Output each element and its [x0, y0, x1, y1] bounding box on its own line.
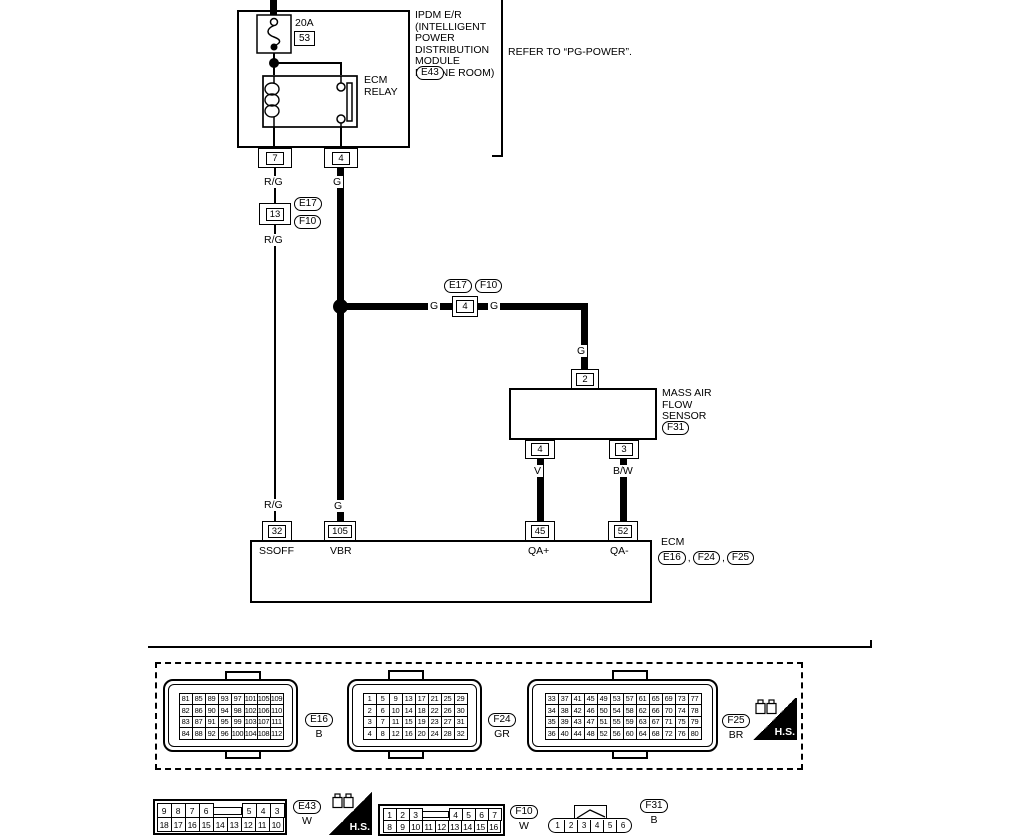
- wire-color-label-rg: R/G: [262, 499, 285, 511]
- wire-g-run: [337, 168, 344, 523]
- pin-cell: 1: [551, 820, 564, 832]
- connector-color-code: B: [650, 814, 657, 826]
- pin-cell: 84: [179, 727, 193, 740]
- pin-cell: 13: [448, 820, 462, 833]
- connector-icon: [332, 793, 354, 809]
- hs-label: H.S.: [775, 726, 795, 738]
- pin-cell: 112: [270, 727, 284, 740]
- pin-grid-f25: 3337414549535761656973773438424650545862…: [545, 693, 701, 739]
- pin-cell: 5: [242, 803, 257, 818]
- pin-cell: 9: [157, 803, 172, 818]
- pin-grid-f24: 1591317212529261014182226303711151923273…: [363, 693, 467, 739]
- wire-color-label-bw: B/W: [611, 465, 635, 477]
- wire-color-label-g: G: [575, 345, 587, 357]
- fuse-number: 53: [294, 31, 315, 46]
- connector-label-f25: F25 BR: [717, 714, 755, 741]
- connector-id-tag: E43: [293, 800, 321, 814]
- pin-cell: 48: [584, 727, 598, 740]
- ecm-pin-32: 32: [262, 521, 292, 541]
- pin-row: 181716151413121110: [157, 817, 284, 832]
- pin-cell: 68: [649, 727, 663, 740]
- ecm-pin-45: 45: [525, 521, 555, 541]
- pin-cell: 11: [255, 817, 270, 832]
- pin-cell: 108: [257, 727, 271, 740]
- wiring-diagram: 20A 53 ECM RELAY IPDM E/R (INTELLIGENT P…: [0, 0, 1020, 840]
- separator: ,: [722, 552, 725, 564]
- maf-pin-3: 3: [609, 440, 639, 459]
- fuse-rating: 20A: [295, 17, 314, 29]
- ipdm-title-line: IPDM E/R: [415, 10, 494, 22]
- pin-cell: 88: [192, 727, 206, 740]
- pin-cell: 92: [205, 727, 219, 740]
- pin-cell: 4: [363, 727, 377, 740]
- refer-note: REFER TO “PG-POWER”.: [508, 46, 632, 58]
- pin-number: 52: [614, 525, 633, 538]
- pin-number: 32: [268, 525, 287, 538]
- wire-color-label-g: G: [488, 300, 500, 312]
- connector-color-code: GR: [494, 728, 510, 740]
- connector-view-e16: 8185899397101105109828690949810210611083…: [163, 679, 298, 752]
- connector-id-tag-f24: F24: [693, 551, 720, 565]
- pin-cell: 24: [428, 727, 442, 740]
- wire-color-label-rg: R/G: [262, 176, 285, 188]
- pin-number: 13: [266, 208, 285, 221]
- maf-pin-2: 2: [571, 369, 599, 389]
- connector-id-tag: E16: [305, 713, 333, 727]
- pin-cell: 6: [199, 803, 214, 818]
- pin-cell: 3: [577, 820, 590, 832]
- wire-color-label-g: G: [332, 500, 344, 512]
- connector-color-code: W: [302, 815, 312, 827]
- pin-cell: 18: [157, 817, 172, 832]
- pin-cell: 8: [171, 803, 186, 818]
- hs-mark: H.S.: [329, 792, 372, 835]
- pin-cell: 80: [688, 727, 702, 740]
- maf-title-line: MASS AIR: [662, 388, 712, 400]
- ecm-pin-52: 52: [608, 521, 638, 541]
- connector-id-tag: F10: [510, 805, 537, 819]
- pin-row: 123456: [551, 820, 629, 832]
- pin-number: 4: [332, 152, 350, 165]
- connector-color-code: B: [315, 728, 322, 740]
- connector-id-tag-f10: F10: [475, 279, 502, 293]
- connector-label-e43: E43 W: [288, 800, 326, 827]
- connector-view-f31: 123456: [548, 818, 632, 833]
- ecm-box: [250, 540, 652, 603]
- ecm-pin-name-qa-plus: QA+: [528, 545, 549, 557]
- pin-grid-e16: 8185899397101105109828690949810210611083…: [179, 693, 283, 739]
- pin-cell: 12: [389, 727, 403, 740]
- pin-cell: 52: [597, 727, 611, 740]
- pin-number: 105: [328, 525, 352, 538]
- pin-cell: 11: [422, 820, 436, 833]
- ecm-pin-name-vbr: VBR: [330, 545, 352, 557]
- pin-number: 3: [615, 443, 633, 456]
- connector-icon: [755, 699, 777, 715]
- separator: ,: [688, 552, 691, 564]
- refer-bracket-vertical: [501, 0, 503, 157]
- pin-cell: 17: [171, 817, 186, 832]
- maf-sensor-box: [509, 388, 657, 440]
- connector-id-tag-f31: F31: [662, 421, 689, 435]
- pin-cell: 40: [558, 727, 572, 740]
- fuse-icon: [256, 14, 292, 54]
- pin-number: 4: [531, 443, 549, 456]
- pin-cell: 9: [396, 820, 410, 833]
- connector-label-e16: E16 B: [300, 713, 338, 740]
- connector-id-tag: F25: [722, 714, 749, 728]
- connector-id-tag-f25: F25: [727, 551, 754, 565]
- connector-id-tag: F24: [488, 713, 515, 727]
- pin-grid-f31: 123456: [551, 820, 629, 832]
- ecm-title: ECM: [661, 536, 684, 548]
- pin-grid-f10: 12345678910111213141516: [383, 808, 501, 832]
- connector-color-code: BR: [729, 729, 744, 741]
- pin-row: 8910111213141516: [383, 820, 501, 833]
- connector-id-tag-e17: E17: [294, 197, 322, 211]
- pin-number: 7: [266, 152, 284, 165]
- ipdm-pin-7: 7: [258, 148, 292, 168]
- pin-cell: 72: [662, 727, 676, 740]
- ecm-relay-label-line1: ECM: [364, 75, 398, 87]
- pin-cell: 14: [213, 817, 228, 832]
- connector-view-f25: 3337414549535761656973773438424650545862…: [527, 679, 718, 752]
- pin-row: 9876543: [157, 803, 284, 818]
- pin-cell: 16: [185, 817, 200, 832]
- ecm-pin-name-ssoff: SSOFF: [259, 545, 294, 557]
- wire-g-branch-vertical: [581, 303, 588, 370]
- pin-cell: 96: [218, 727, 232, 740]
- pin-cell: 8: [376, 727, 390, 740]
- pin-cell: 100: [231, 727, 245, 740]
- connector-inner-frame: 3337414549535761656973773438424650545862…: [532, 684, 713, 747]
- pin-cell: 3: [270, 803, 285, 818]
- pin-number: 4: [456, 300, 474, 313]
- pin-cell: 15: [474, 820, 488, 833]
- connector-id-tag-e43: E43: [416, 66, 444, 80]
- pin-cell: 13: [227, 817, 242, 832]
- connector-view-e43: 9876543181716151413121110: [153, 799, 287, 835]
- connector-id-tag-f10: F10: [294, 215, 321, 229]
- refer-bracket-foot: [492, 155, 503, 157]
- pin-row: 84889296100104108112: [179, 727, 283, 740]
- pin-cell: 104: [244, 727, 258, 740]
- pin-cell: 32: [454, 727, 468, 740]
- pin-number: 45: [531, 525, 550, 538]
- keyway-slot: [422, 811, 449, 818]
- pin-cell: 36: [545, 727, 559, 740]
- pin-cell: 16: [402, 727, 416, 740]
- ipdm-pin-4: 4: [324, 148, 358, 168]
- section-divider: [148, 646, 872, 648]
- wire-color-label-g: G: [428, 300, 440, 312]
- connector-label-f24: F24 GR: [483, 713, 521, 740]
- pin-row: 364044485256606468727680: [545, 727, 701, 740]
- maf-pin-4: 4: [525, 440, 555, 459]
- pin-cell: 4: [590, 820, 603, 832]
- ipdm-title-line: POWER: [415, 33, 494, 45]
- section-divider-tick: [870, 640, 872, 648]
- ecm-relay-label: ECM RELAY: [364, 75, 398, 98]
- hs-mark: H.S.: [752, 698, 797, 740]
- pin-cell: 5: [603, 820, 616, 832]
- pin-cell: 16: [487, 820, 501, 833]
- pin-cell: 76: [675, 727, 689, 740]
- connector-label-f31: F31 B: [635, 799, 673, 826]
- ecm-pin-105: 105: [324, 521, 356, 541]
- connector-inner-frame: 1591317212529261014182226303711151923273…: [352, 684, 477, 747]
- pin-cell: 12: [435, 820, 449, 833]
- pin-cell: 10: [269, 817, 284, 832]
- pin-cell: 60: [623, 727, 637, 740]
- connector-label-f10: F10 W: [505, 805, 543, 832]
- pin-row: 48121620242832: [363, 727, 467, 740]
- inline-connector-pin-4: 4: [452, 296, 478, 317]
- connector-view-f24: 1591317212529261014182226303711151923273…: [347, 679, 482, 752]
- keyway-slot: [213, 807, 242, 815]
- connector-view-f10: 12345678910111213141516: [378, 804, 505, 836]
- pin-cell: 28: [441, 727, 455, 740]
- pin-cell: 12: [241, 817, 256, 832]
- pin-cell: 44: [571, 727, 585, 740]
- connector-id-tag-e16: E16: [658, 551, 686, 565]
- wire-color-label-v: V: [532, 465, 543, 477]
- pin-cell: 14: [461, 820, 475, 833]
- connector-inner-frame: 8185899397101105109828690949810210611083…: [168, 684, 293, 747]
- pin-cell: 20: [415, 727, 429, 740]
- pin-cell: 4: [256, 803, 271, 818]
- pin-cell: 56: [610, 727, 624, 740]
- pin-cell: 64: [636, 727, 650, 740]
- pin-cell: 7: [185, 803, 200, 818]
- pin-cell: 10: [409, 820, 423, 833]
- pin-number: 2: [576, 373, 594, 386]
- wire-color-label-rg: R/G: [262, 234, 285, 246]
- connector-id-tag: F31: [640, 799, 667, 813]
- pin-cell: 2: [564, 820, 577, 832]
- pin-cell: 15: [199, 817, 214, 832]
- hs-label: H.S.: [350, 821, 370, 833]
- wire-color-label-g: G: [331, 176, 343, 188]
- ecm-pin-name-qa-minus: QA-: [610, 545, 629, 557]
- harness-connector-pin-13: 13: [259, 203, 291, 225]
- connector-id-tag-e17: E17: [444, 279, 472, 293]
- ecm-relay-label-line2: RELAY: [364, 87, 398, 99]
- maf-title: MASS AIR FLOW SENSOR: [662, 388, 712, 423]
- ecm-connector-list: E16 , F24 , F25: [658, 551, 754, 565]
- pin-cell: 6: [616, 820, 629, 832]
- connector-color-code: W: [519, 820, 529, 832]
- pin-grid-e43: 9876543181716151413121110: [157, 803, 284, 831]
- pin-cell: 8: [383, 820, 397, 833]
- ecm-relay-icon: [262, 75, 358, 128]
